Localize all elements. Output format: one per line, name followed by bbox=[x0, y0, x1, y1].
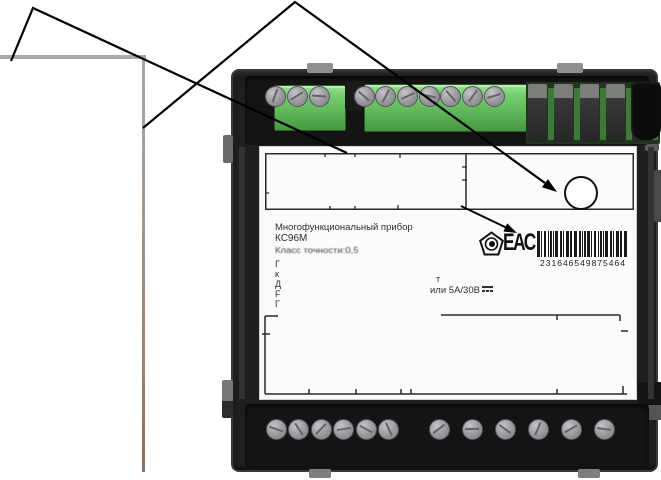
terminal-screw bbox=[354, 86, 375, 107]
redacted-letters: ГкДFГ bbox=[275, 259, 281, 309]
barcode-bar bbox=[550, 231, 552, 257]
barcode-bar bbox=[616, 231, 619, 257]
terminal-screw bbox=[309, 86, 330, 107]
barcode-bar bbox=[566, 231, 569, 257]
terminal-screw bbox=[462, 86, 483, 107]
terminal-screw bbox=[528, 419, 549, 440]
barcode-bar bbox=[613, 231, 614, 257]
barcode-bar bbox=[584, 231, 586, 257]
device-rear-panel: Многофункциональный прибор КС96М Класс т… bbox=[231, 69, 658, 472]
label-title: Многофункциональный прибор bbox=[275, 222, 413, 233]
barcode-bar bbox=[603, 231, 604, 257]
barcode-bar bbox=[574, 231, 577, 257]
relay-slot-tab bbox=[580, 84, 599, 142]
barcode-bar bbox=[598, 231, 599, 257]
verification-mark-circle bbox=[565, 177, 597, 209]
barcode-bar bbox=[537, 231, 540, 257]
top-edge-tab-left bbox=[307, 63, 333, 73]
barcode-bar bbox=[541, 231, 542, 257]
barcode-bar bbox=[605, 231, 608, 257]
terminal-screw bbox=[440, 86, 461, 107]
barcode-bar bbox=[600, 231, 602, 257]
terminal-screw bbox=[311, 419, 332, 440]
inner-edge-left bbox=[239, 147, 245, 399]
barcode-bar bbox=[594, 231, 596, 257]
top-edge-tab-right bbox=[557, 63, 583, 73]
current-note-text: или 5А/30В bbox=[430, 285, 480, 296]
barcode-bar bbox=[548, 231, 549, 257]
label-table-top bbox=[265, 153, 634, 210]
figure-device-rear-view: Многофункциональный прибор КС96М Класс т… bbox=[0, 0, 661, 480]
terminal-screw bbox=[266, 419, 287, 440]
barcode-bar bbox=[591, 231, 592, 257]
device-label: Многофункциональный прибор КС96М Класс т… bbox=[259, 146, 637, 400]
barcode-bar bbox=[563, 231, 564, 257]
barcode-bar bbox=[555, 231, 558, 257]
relay-slot-tab bbox=[528, 84, 547, 142]
terminal-screw bbox=[333, 419, 354, 440]
barcode bbox=[537, 231, 630, 257]
barcode-bar bbox=[587, 231, 590, 257]
corner-clip-top-right bbox=[631, 82, 661, 140]
terminal-screw bbox=[419, 86, 440, 107]
terminal-screw bbox=[356, 419, 377, 440]
relay-slot-tab bbox=[554, 84, 573, 142]
current-note-line2: или 5А/30В bbox=[430, 285, 493, 296]
terminal-screw bbox=[495, 419, 516, 440]
barcode-bar bbox=[553, 231, 554, 257]
terminal-screw bbox=[462, 419, 483, 440]
terminal-screw bbox=[429, 419, 450, 440]
eac-mark: ЕАС bbox=[503, 229, 535, 257]
barcode-bar bbox=[544, 231, 546, 257]
terminal-screw bbox=[288, 419, 309, 440]
terminal-screw bbox=[287, 86, 308, 107]
redacted-line: к bbox=[275, 269, 281, 279]
barcode-bar bbox=[579, 231, 581, 257]
mounting-clip-right-mid bbox=[654, 170, 661, 222]
quality-pentagon-icon bbox=[479, 231, 504, 257]
model-number: КС96М bbox=[275, 233, 307, 244]
terminal-screw bbox=[561, 419, 582, 440]
terminal-screw bbox=[375, 86, 396, 107]
accuracy-class: Класс точности:0,5 bbox=[275, 246, 359, 255]
mounting-clip-left-bottom bbox=[222, 380, 233, 418]
terminal-screw bbox=[484, 86, 505, 107]
inner-edge-right bbox=[648, 147, 654, 399]
barcode-bar bbox=[570, 231, 572, 257]
terminal-screw bbox=[378, 419, 399, 440]
dc-symbol-icon bbox=[482, 285, 493, 292]
panel-cutout-line-top bbox=[0, 55, 146, 59]
panel-cutout-line-side bbox=[142, 55, 145, 472]
bottom-edge-tab-right bbox=[578, 469, 600, 478]
mounting-clip-left-top bbox=[223, 135, 233, 163]
terminal-screw bbox=[397, 86, 418, 107]
barcode-bar bbox=[620, 231, 622, 257]
label-table-bottom bbox=[261, 303, 635, 399]
terminal-screw bbox=[594, 419, 615, 440]
current-note-line1: т bbox=[436, 274, 440, 285]
barcode-bar bbox=[624, 231, 627, 257]
redacted-line: Д bbox=[275, 279, 281, 289]
redacted-line: F bbox=[275, 289, 281, 299]
terminal-screw bbox=[265, 86, 286, 107]
bottom-edge-tab-left bbox=[309, 469, 331, 478]
relay-slot-tab bbox=[606, 84, 625, 142]
barcode-number: 231646549875464 bbox=[532, 258, 634, 268]
barcode-bar bbox=[560, 231, 562, 257]
redacted-line: Г bbox=[275, 259, 281, 269]
barcode-bar bbox=[610, 231, 612, 257]
barcode-bar bbox=[582, 231, 583, 257]
